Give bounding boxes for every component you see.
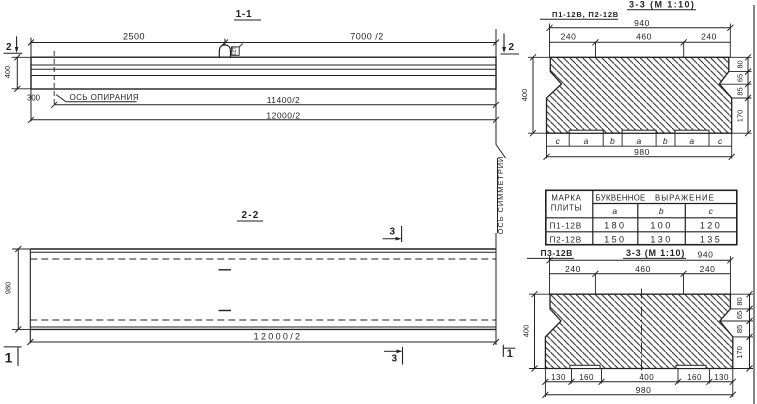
svg-text:135: 135 bbox=[700, 234, 722, 244]
svg-text:ВЫРАЖЕНИЕ: ВЫРАЖЕНИЕ bbox=[655, 194, 715, 203]
svg-text:130: 130 bbox=[551, 373, 566, 382]
svg-text:130: 130 bbox=[650, 234, 672, 244]
svg-text:170: 170 bbox=[735, 346, 744, 359]
svg-text:c: c bbox=[556, 136, 561, 146]
svg-text:b: b bbox=[659, 206, 664, 216]
svg-text:БУКВЕННОЕ: БУКВЕННОЕ bbox=[596, 194, 646, 203]
svg-text:170: 170 bbox=[736, 110, 745, 123]
svg-text:80: 80 bbox=[736, 60, 745, 68]
svg-text:980: 980 bbox=[634, 147, 650, 157]
svg-text:12000/2: 12000/2 bbox=[266, 111, 300, 121]
svg-text:460: 460 bbox=[635, 264, 651, 274]
svg-text:П1-12В, П2-12В: П1-12В, П2-12В bbox=[552, 10, 619, 19]
svg-text:П2-12В: П2-12В bbox=[550, 235, 583, 244]
svg-text:400: 400 bbox=[522, 325, 531, 338]
svg-text:980: 980 bbox=[636, 385, 652, 395]
svg-text:240: 240 bbox=[561, 32, 577, 42]
svg-text:85: 85 bbox=[736, 87, 745, 95]
svg-text:1-1: 1-1 bbox=[236, 9, 253, 20]
svg-text:2-2: 2-2 bbox=[241, 210, 259, 221]
svg-text:80: 80 bbox=[735, 297, 744, 305]
svg-text:240: 240 bbox=[701, 32, 717, 42]
svg-text:460: 460 bbox=[636, 32, 652, 42]
svg-text:2500: 2500 bbox=[123, 32, 145, 42]
svg-text:c: c bbox=[718, 136, 723, 146]
svg-text:100: 100 bbox=[650, 220, 672, 230]
svg-text:3: 3 bbox=[389, 227, 395, 238]
svg-text:150: 150 bbox=[604, 234, 626, 244]
svg-text:940: 940 bbox=[634, 18, 650, 28]
svg-text:11400/2: 11400/2 bbox=[267, 95, 301, 105]
svg-text:85: 85 bbox=[735, 325, 744, 333]
svg-text:940: 940 bbox=[698, 250, 714, 260]
svg-text:ОСЬ СИММЕТРИИ: ОСЬ СИММЕТРИИ bbox=[496, 156, 505, 235]
svg-text:180: 180 bbox=[604, 220, 626, 230]
svg-text:a: a bbox=[689, 136, 694, 146]
svg-text:400: 400 bbox=[639, 373, 654, 382]
svg-text:1: 1 bbox=[507, 348, 514, 360]
svg-text:П1-12В: П1-12В bbox=[550, 221, 583, 230]
svg-text:ПЛИТЫ: ПЛИТЫ bbox=[551, 204, 583, 213]
svg-text:a: a bbox=[636, 136, 641, 146]
svg-text:П3-12В: П3-12В bbox=[541, 248, 573, 258]
svg-text:ОСЬ ОПИРАНИЯ: ОСЬ ОПИРАНИЯ bbox=[70, 93, 139, 102]
svg-text:65: 65 bbox=[736, 74, 745, 82]
svg-text:120: 120 bbox=[700, 220, 722, 230]
svg-text:240: 240 bbox=[565, 264, 581, 274]
svg-text:МАРКА: МАРКА bbox=[551, 194, 581, 203]
svg-text:a: a bbox=[584, 136, 589, 146]
svg-text:130: 130 bbox=[714, 373, 729, 382]
svg-text:125: 125 bbox=[231, 45, 238, 56]
svg-text:2: 2 bbox=[6, 42, 12, 53]
svg-text:3-3 (М 1:10): 3-3 (М 1:10) bbox=[626, 248, 685, 258]
svg-text:980: 980 bbox=[4, 282, 13, 295]
svg-text:2: 2 bbox=[508, 42, 514, 53]
svg-text:3: 3 bbox=[391, 354, 397, 365]
svg-text:160: 160 bbox=[579, 373, 594, 382]
svg-text:7000 /2: 7000 /2 bbox=[350, 32, 384, 42]
svg-text:240: 240 bbox=[700, 264, 716, 274]
svg-text:a: a bbox=[612, 206, 617, 216]
svg-text:12000/2: 12000/2 bbox=[254, 332, 303, 342]
svg-text:160: 160 bbox=[687, 373, 702, 382]
svg-text:400: 400 bbox=[520, 89, 529, 102]
svg-text:300: 300 bbox=[27, 94, 41, 103]
svg-text:b: b bbox=[610, 136, 615, 146]
svg-text:3-3 (М 1:10): 3-3 (М 1:10) bbox=[629, 0, 695, 10]
svg-text:65: 65 bbox=[735, 311, 744, 319]
svg-text:400: 400 bbox=[3, 66, 12, 79]
svg-text:1: 1 bbox=[5, 351, 13, 366]
svg-text:b: b bbox=[663, 136, 668, 146]
svg-text:c: c bbox=[709, 206, 714, 216]
